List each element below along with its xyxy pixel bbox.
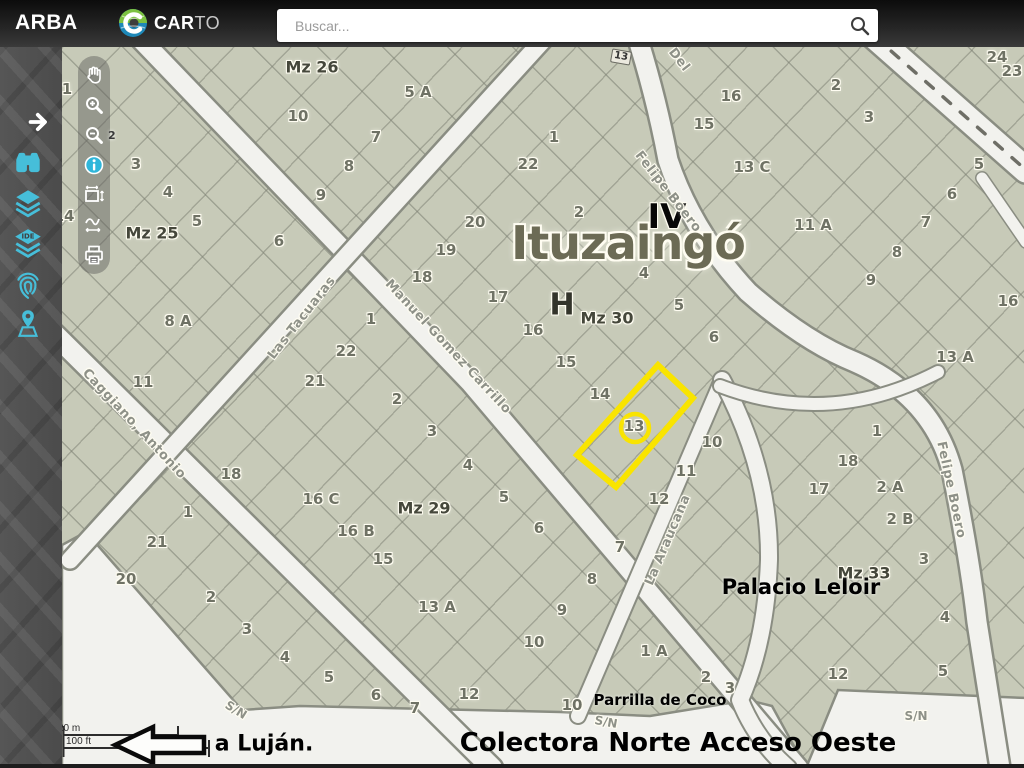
measure-path-icon [82,213,106,237]
left-sidebar: IDE [0,47,62,768]
search-icon [849,15,871,37]
measure-area-icon [82,183,106,207]
carto-logo[interactable]: CARTO [118,8,220,38]
sidebar-expand-button[interactable] [26,110,52,134]
top-bar: ARBA CARTO [0,0,1024,47]
print-icon [82,243,106,267]
search-bar [277,9,878,42]
sidebar-layers-tool[interactable] [10,185,46,221]
zoom-out-badge: 2 [108,129,116,142]
pan-hand-icon [82,63,106,87]
fingerprint-icon [12,269,44,301]
map-canvas[interactable] [62,47,1024,768]
measure-path-button[interactable] [78,210,110,240]
pan-tool-button[interactable] [78,60,110,90]
sidebar-locate-area-tool[interactable] [10,305,46,341]
bottom-edge [0,764,1024,768]
sidebar-search-tool[interactable] [10,145,46,181]
layers-ide-icon: IDE [12,227,44,259]
carto-wordmark-bold: CAR [154,13,195,33]
print-button[interactable] [78,240,110,270]
sidebar-ide-layers-tool[interactable]: IDE [10,225,46,261]
layers-icon [12,187,44,219]
zoom-out-button[interactable] [78,120,110,150]
info-icon [82,153,106,177]
area-pin-icon [12,307,44,339]
arba-logo[interactable]: ARBA [15,11,78,35]
zoom-in-button[interactable] [78,90,110,120]
carto-wordmark: CARTO [154,13,220,34]
sidebar-fingerprint-tool[interactable] [10,267,46,303]
info-tool-button[interactable] [78,150,110,180]
carto-globe-icon [118,8,148,38]
app-window: Ituzaingó IV H Palacio Leloir Parrilla d… [0,0,1024,768]
measure-area-button[interactable] [78,180,110,210]
search-button[interactable] [842,9,878,42]
zoom-out-icon [82,123,106,147]
zoom-in-icon [82,93,106,117]
ide-label: IDE [21,233,34,241]
expand-arrow-icon [26,110,52,134]
carto-wordmark-light: TO [195,13,221,33]
map-toolbar: 2 [78,56,110,274]
search-input[interactable] [293,17,842,35]
binoculars-icon [12,147,44,179]
